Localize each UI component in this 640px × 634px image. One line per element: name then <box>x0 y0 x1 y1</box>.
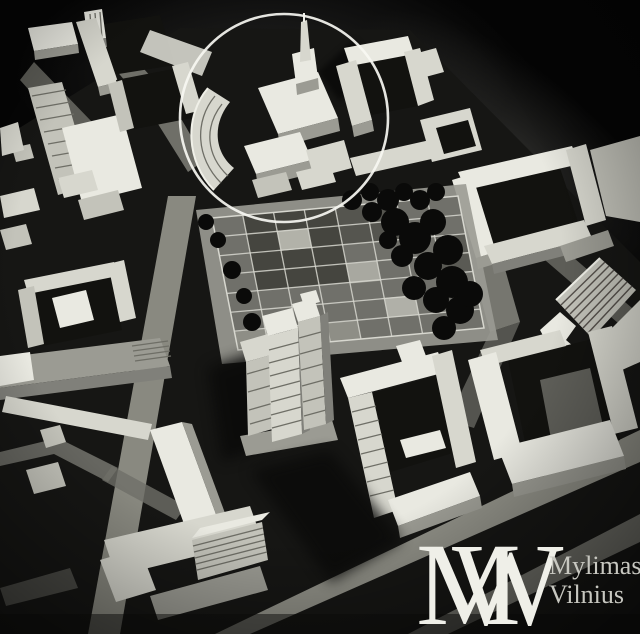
watermark-monogram-w: W <box>452 519 564 634</box>
model-photo: M W Mylimas Vilnius <box>0 0 640 634</box>
watermark-line2: Vilnius <box>549 580 624 609</box>
photo-stage: M W Mylimas Vilnius <box>0 0 640 634</box>
watermark-line1: Mylimas <box>549 551 640 580</box>
